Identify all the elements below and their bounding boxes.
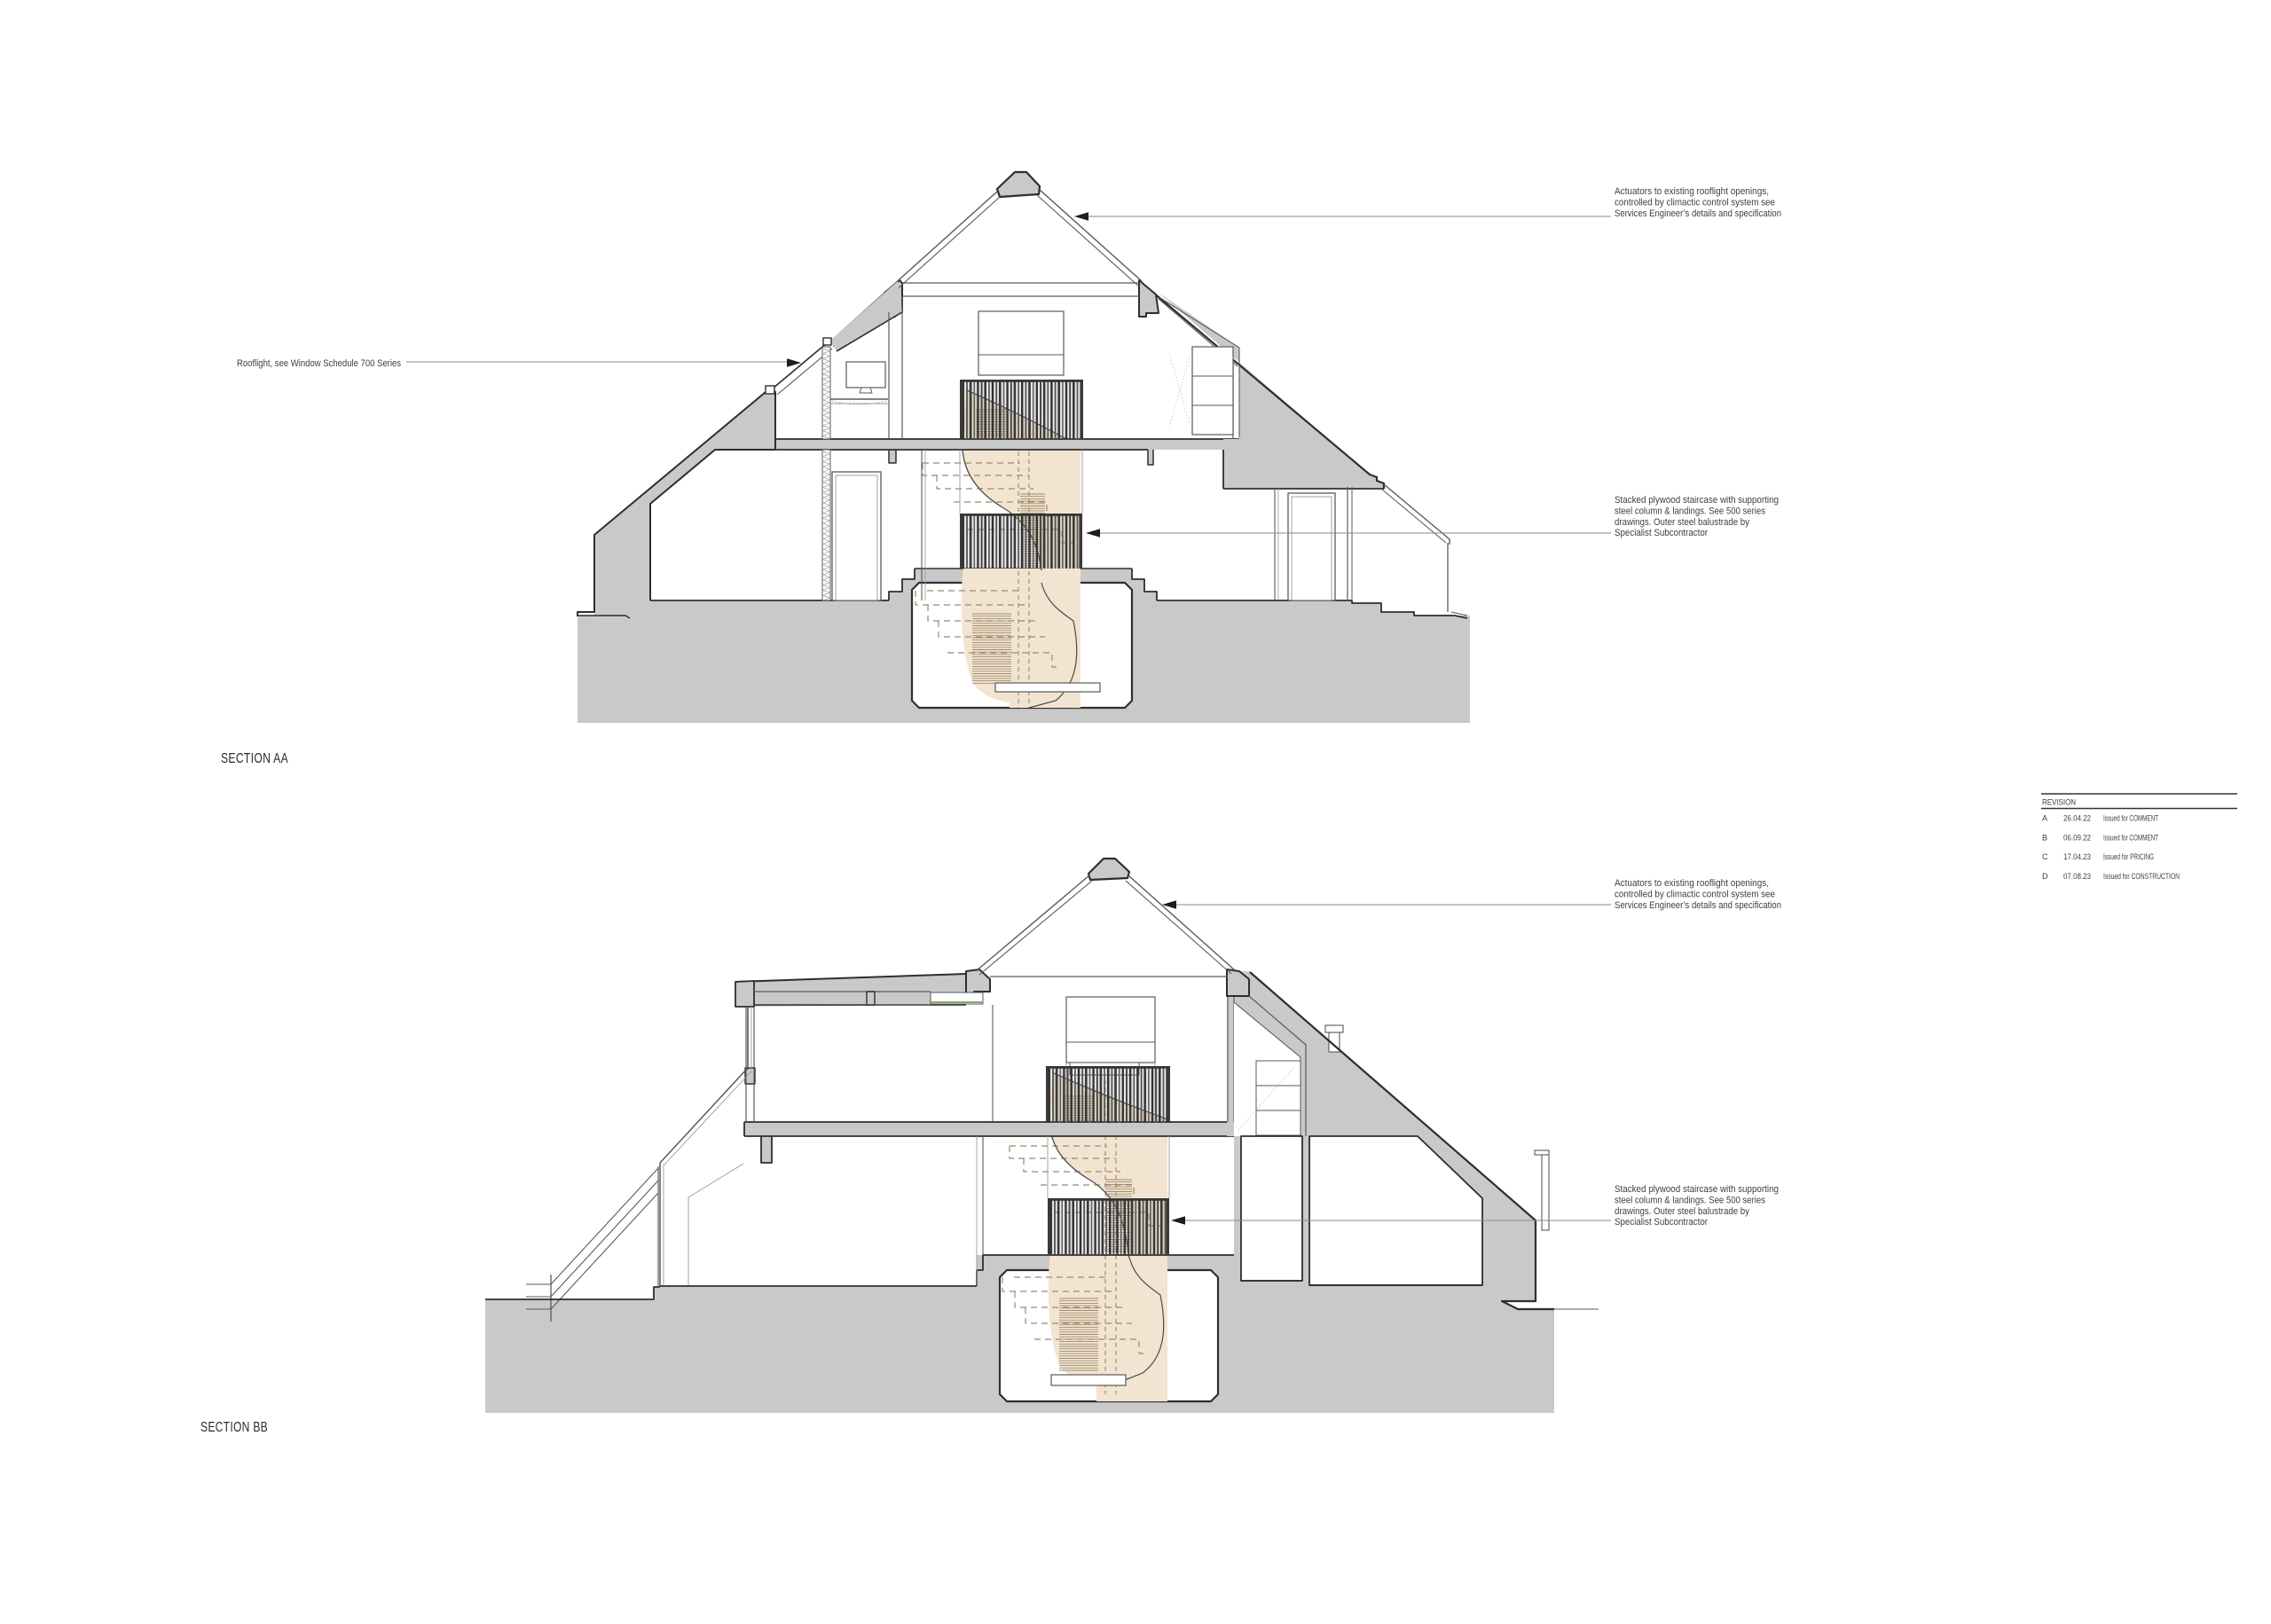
svg-text:B: B	[2042, 833, 2047, 842]
svg-text:Stacked plywood staircase with: Stacked plywood staircase with supportin…	[1615, 1184, 1779, 1195]
svg-text:Stacked plywood staircase with: Stacked plywood staircase with supportin…	[1615, 495, 1779, 506]
svg-text:Specialist Subcontractor: Specialist Subcontractor	[1615, 1217, 1708, 1228]
svg-text:SECTION AA: SECTION AA	[221, 751, 288, 766]
svg-text:Issued for CONSTRUCTION: Issued for CONSTRUCTION	[2103, 872, 2180, 881]
svg-text:steel column & landings. See 5: steel column & landings. See 500 series	[1615, 506, 1765, 516]
svg-text:Issued for COMMENT: Issued for COMMENT	[2103, 833, 2158, 842]
svg-text:Issued for PRICING: Issued for PRICING	[2103, 852, 2154, 861]
svg-text:drawings. Outer steel balustra: drawings. Outer steel balustrade by	[1615, 517, 1749, 528]
svg-text:Services Engineer’s details an: Services Engineer’s details and specific…	[1615, 900, 1781, 911]
svg-text:Actuators to existing roofligh: Actuators to existing rooflight openings…	[1615, 186, 1769, 197]
svg-text:06.09.22: 06.09.22	[2063, 833, 2091, 842]
svg-text:REVISION: REVISION	[2042, 798, 2076, 807]
svg-text:A: A	[2042, 814, 2047, 823]
svg-text:Services Engineer’s details an: Services Engineer’s details and specific…	[1615, 208, 1781, 219]
svg-text:C: C	[2042, 852, 2048, 861]
svg-text:steel column & landings. See 5: steel column & landings. See 500 series	[1615, 1195, 1765, 1205]
svg-text:07.08.23: 07.08.23	[2063, 872, 2091, 881]
svg-text:26.04.22: 26.04.22	[2063, 814, 2091, 823]
svg-text:Actuators to existing roofligh: Actuators to existing rooflight openings…	[1615, 878, 1769, 889]
svg-text:controlled by climactic contro: controlled by climactic control system s…	[1615, 197, 1775, 208]
svg-text:D: D	[2042, 872, 2048, 881]
svg-text:SECTION BB: SECTION BB	[200, 1420, 268, 1435]
svg-text:Issued for COMMENT: Issued for COMMENT	[2103, 814, 2158, 823]
svg-text:controlled by climactic contro: controlled by climactic control system s…	[1615, 889, 1775, 899]
svg-text:17.04.23: 17.04.23	[2063, 852, 2091, 861]
svg-text:drawings. Outer steel balustra: drawings. Outer steel balustrade by	[1615, 1206, 1749, 1217]
svg-text:Specialist Subcontractor: Specialist Subcontractor	[1615, 528, 1708, 538]
svg-text:Rooflight, see Window Schedule: Rooflight, see Window Schedule 700 Serie…	[237, 358, 401, 369]
